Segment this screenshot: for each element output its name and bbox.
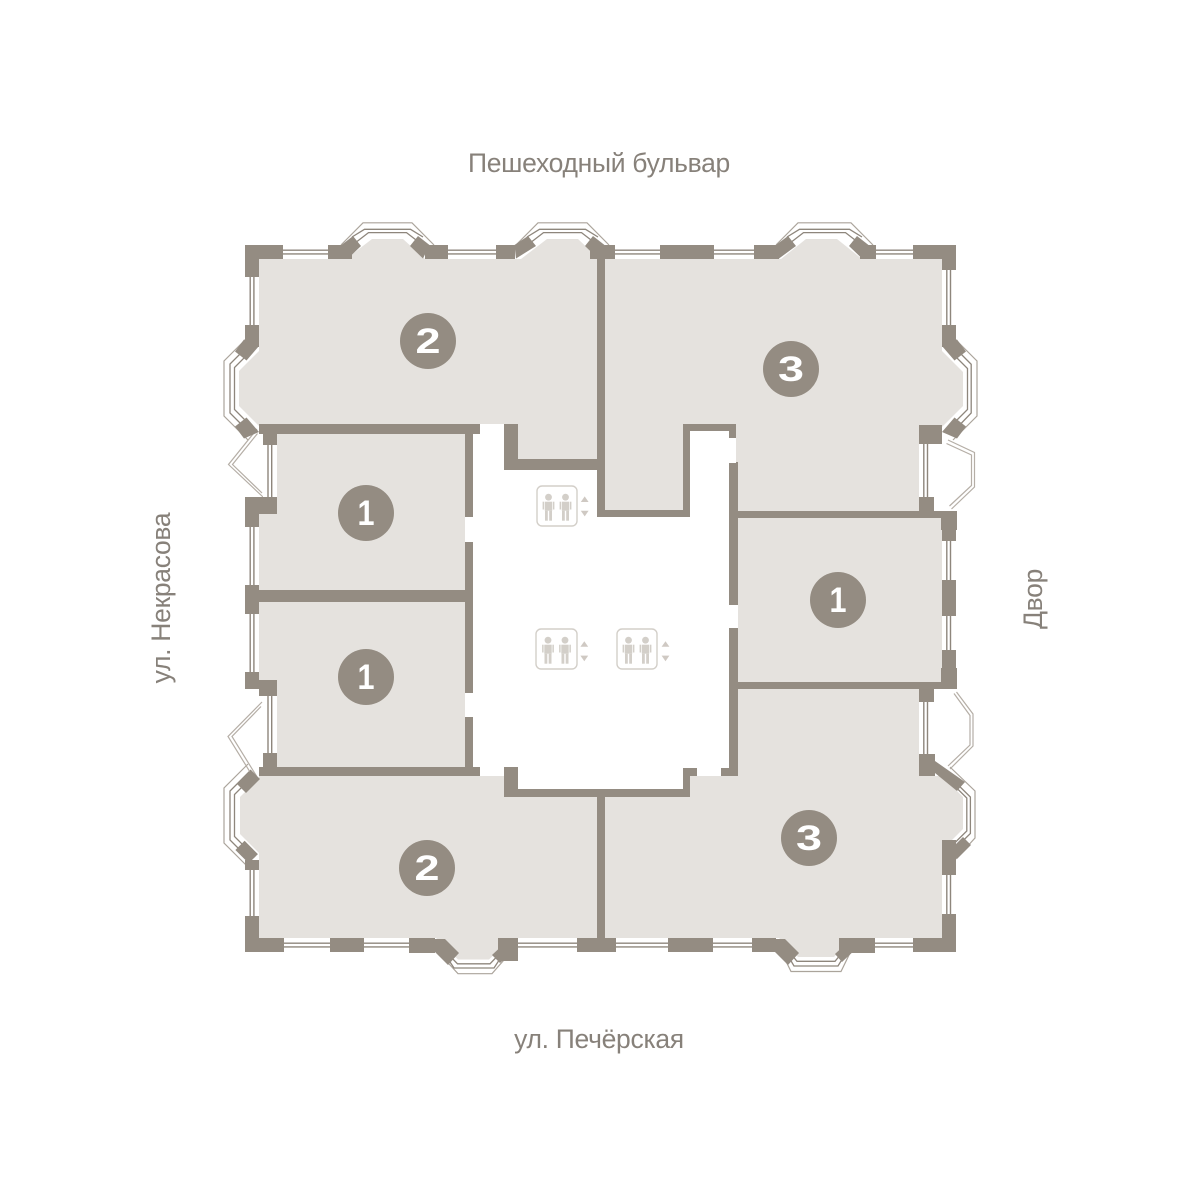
svg-text:3: 3 [778,350,804,389]
svg-text:ул. Некрасова: ул. Некрасова [146,512,176,683]
svg-text:ул. Печёрская: ул. Печёрская [514,1024,684,1054]
svg-text:1: 1 [358,658,375,697]
svg-text:2: 2 [416,322,441,361]
svg-text:1: 1 [358,494,375,533]
svg-text:1: 1 [830,581,847,620]
svg-text:Двор: Двор [1018,569,1048,629]
svg-text:2: 2 [415,849,440,888]
svg-text:Пешеходный бульвар: Пешеходный бульвар [468,148,730,178]
svg-text:3: 3 [796,819,822,858]
